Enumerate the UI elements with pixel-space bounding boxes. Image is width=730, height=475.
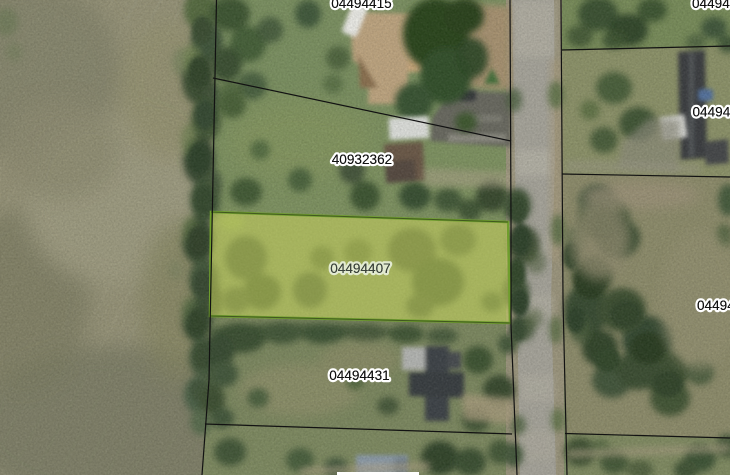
svg-text:044944: 044944 — [692, 0, 730, 11]
svg-text:044944: 044944 — [693, 105, 730, 120]
svg-text:04494407: 04494407 — [330, 261, 390, 276]
svg-text:044944: 044944 — [697, 298, 730, 313]
svg-text:04494431: 04494431 — [329, 368, 389, 383]
svg-text:04494415: 04494415 — [331, 0, 391, 11]
svg-text:40932362: 40932362 — [332, 152, 392, 167]
